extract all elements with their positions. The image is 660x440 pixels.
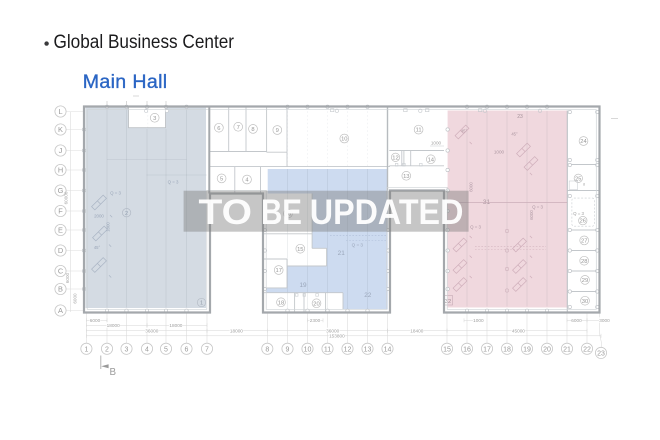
svg-text:30: 30 xyxy=(582,299,588,305)
svg-text:3: 3 xyxy=(153,116,156,122)
svg-text:4: 4 xyxy=(145,346,149,353)
svg-text:B: B xyxy=(58,285,63,294)
svg-text:Global Business Center: Global Business Center xyxy=(54,32,235,53)
svg-text:8: 8 xyxy=(265,346,269,353)
svg-text:F: F xyxy=(58,207,63,216)
svg-text:21: 21 xyxy=(563,346,571,353)
svg-text:27: 27 xyxy=(581,239,587,245)
svg-text:B: B xyxy=(110,367,117,378)
svg-text:E: E xyxy=(58,226,63,235)
svg-text:6: 6 xyxy=(185,346,189,353)
svg-text:K: K xyxy=(58,125,63,134)
svg-text:UPDATED: UPDATED xyxy=(310,193,464,232)
svg-text:153800: 153800 xyxy=(329,333,345,338)
svg-text:13: 13 xyxy=(403,174,409,180)
svg-text:18000: 18000 xyxy=(169,323,182,328)
svg-text:1000: 1000 xyxy=(494,149,505,154)
svg-text:Q = 3: Q = 3 xyxy=(110,190,121,195)
svg-text:BE: BE xyxy=(261,193,302,232)
svg-text:21: 21 xyxy=(338,250,346,257)
svg-text:20: 20 xyxy=(313,301,319,307)
svg-text:13: 13 xyxy=(364,346,372,353)
svg-text:12: 12 xyxy=(392,155,398,161)
svg-text:60000: 60000 xyxy=(64,191,69,204)
svg-text:14: 14 xyxy=(384,346,392,353)
svg-text:14: 14 xyxy=(428,157,435,163)
svg-text:Q = 3: Q = 3 xyxy=(352,242,364,247)
svg-text:29: 29 xyxy=(582,278,588,284)
svg-text:C: C xyxy=(58,267,64,276)
svg-text:2300: 2300 xyxy=(310,318,321,323)
svg-text:7: 7 xyxy=(237,125,240,131)
svg-text:17: 17 xyxy=(275,268,281,274)
svg-text:6000: 6000 xyxy=(529,210,534,220)
svg-text:6000: 6000 xyxy=(73,293,78,304)
svg-text:10: 10 xyxy=(341,137,347,143)
svg-text:J: J xyxy=(59,146,63,155)
svg-text:32: 32 xyxy=(445,299,451,305)
svg-text:8: 8 xyxy=(583,182,585,186)
svg-text:Q = 3: Q = 3 xyxy=(470,225,481,230)
svg-text:18400: 18400 xyxy=(410,328,423,333)
svg-text:6000: 6000 xyxy=(571,318,582,323)
svg-text:Q = 3: Q = 3 xyxy=(532,205,543,210)
svg-text:3000: 3000 xyxy=(599,318,610,323)
svg-text:28: 28 xyxy=(581,259,587,265)
svg-text:22: 22 xyxy=(583,346,591,353)
svg-text:TO: TO xyxy=(199,193,253,232)
svg-text:18000: 18000 xyxy=(230,328,243,333)
svg-text:6: 6 xyxy=(217,126,220,132)
svg-text:5: 5 xyxy=(164,346,168,353)
svg-text:23: 23 xyxy=(597,351,605,358)
svg-text:7: 7 xyxy=(205,346,209,353)
svg-text:23: 23 xyxy=(517,114,523,120)
svg-text:18000: 18000 xyxy=(107,323,120,328)
svg-text:18: 18 xyxy=(278,300,284,306)
svg-text:1000: 1000 xyxy=(473,318,484,323)
svg-text:15: 15 xyxy=(443,346,451,353)
svg-text:6000: 6000 xyxy=(90,318,101,323)
svg-text:12: 12 xyxy=(344,346,352,353)
svg-text:15: 15 xyxy=(297,247,303,253)
svg-text:11: 11 xyxy=(324,346,331,353)
svg-text:9: 9 xyxy=(286,346,290,353)
svg-text:11: 11 xyxy=(416,128,422,134)
svg-text:24: 24 xyxy=(580,139,587,145)
svg-text:H: H xyxy=(58,166,63,175)
svg-text:1: 1 xyxy=(84,346,88,353)
svg-text:2000: 2000 xyxy=(94,213,104,218)
svg-text:22: 22 xyxy=(364,292,372,299)
svg-text:6000: 6000 xyxy=(469,182,474,192)
svg-text:Q = 3: Q = 3 xyxy=(168,179,179,184)
svg-text:Q = 3: Q = 3 xyxy=(573,211,584,216)
svg-text:3: 3 xyxy=(125,346,129,353)
svg-text:19: 19 xyxy=(299,282,307,289)
svg-text:2: 2 xyxy=(125,211,128,217)
svg-text:16: 16 xyxy=(463,346,471,353)
svg-text:26: 26 xyxy=(580,219,586,225)
svg-text:45000: 45000 xyxy=(512,328,525,333)
svg-text:10: 10 xyxy=(304,346,312,353)
svg-text:A: A xyxy=(58,306,63,315)
svg-text:45°: 45° xyxy=(94,245,101,250)
svg-text:5: 5 xyxy=(220,177,223,183)
svg-text:20: 20 xyxy=(543,346,551,353)
svg-text:1000: 1000 xyxy=(431,140,442,145)
svg-text:9: 9 xyxy=(276,128,279,134)
svg-text:Main Hall: Main Hall xyxy=(83,71,168,93)
svg-text:36000: 36000 xyxy=(145,328,158,333)
svg-text:2: 2 xyxy=(105,346,109,353)
svg-text:18: 18 xyxy=(503,346,511,353)
svg-text:17: 17 xyxy=(483,346,491,353)
svg-text:1: 1 xyxy=(200,301,203,307)
svg-text:6000: 6000 xyxy=(65,272,70,283)
svg-text:19: 19 xyxy=(523,346,531,353)
svg-text:25: 25 xyxy=(575,176,581,182)
svg-text:45°: 45° xyxy=(511,132,518,137)
svg-text:L: L xyxy=(58,107,62,116)
svg-text:8: 8 xyxy=(251,127,254,133)
svg-text:D: D xyxy=(58,246,63,255)
